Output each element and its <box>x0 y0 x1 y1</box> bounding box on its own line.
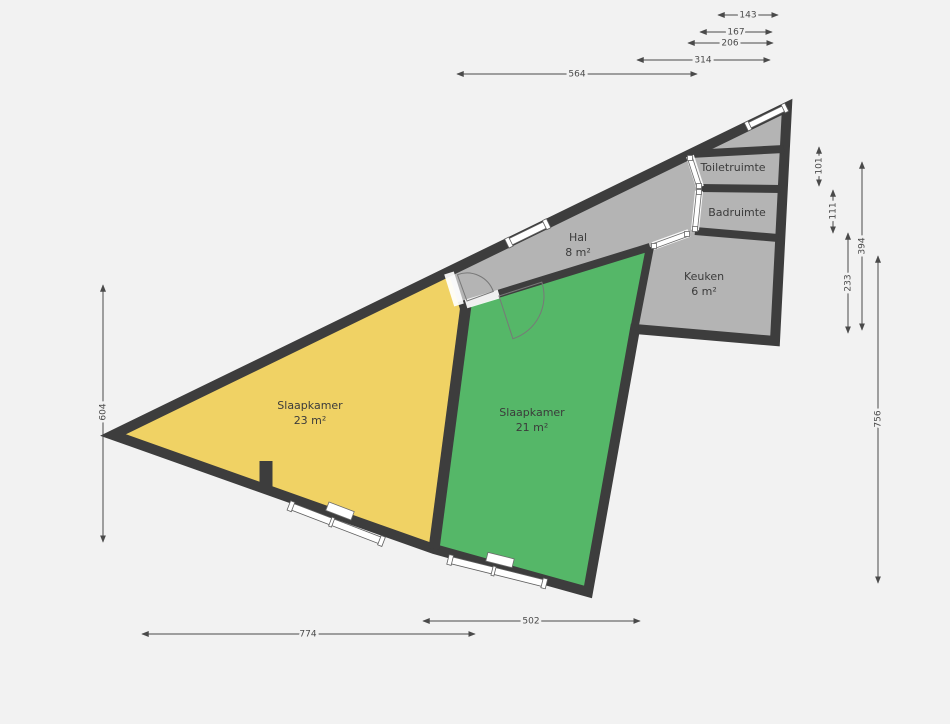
svg-text:756: 756 <box>874 410 884 427</box>
rooms <box>113 107 787 592</box>
dimension-564: 564 <box>457 70 697 80</box>
dimension-143: 143 <box>718 11 778 21</box>
floor-plan-svg: Toiletruimte Badruimte Hal 8 m² Keuken 6… <box>0 0 950 724</box>
svg-text:774: 774 <box>299 630 316 640</box>
label-slaapkamer-links-area: 23 m² <box>294 414 327 427</box>
svg-text:167: 167 <box>727 28 744 38</box>
svg-text:314: 314 <box>694 56 711 66</box>
svg-text:111: 111 <box>829 202 839 219</box>
svg-text:233: 233 <box>844 274 854 291</box>
floor-plan-canvas: Toiletruimte Badruimte Hal 8 m² Keuken 6… <box>0 0 950 724</box>
label-keuken-area: 6 m² <box>691 285 717 298</box>
dimension-774: 774 <box>142 630 475 640</box>
svg-text:394: 394 <box>858 237 868 254</box>
label-slaapkamer-links: Slaapkamer <box>277 399 343 412</box>
label-badruimte: Badruimte <box>708 206 766 219</box>
svg-text:564: 564 <box>568 70 585 80</box>
label-toiletruimte: Toiletruimte <box>699 161 765 174</box>
label-hal-area: 8 m² <box>565 246 591 259</box>
label-hal: Hal <box>569 231 587 244</box>
svg-text:604: 604 <box>99 403 109 420</box>
svg-text:206: 206 <box>721 39 738 49</box>
label-slaapkamer-rechts-area: 21 m² <box>516 421 549 434</box>
dimension-167: 167 <box>700 28 772 38</box>
dimension-502: 502 <box>423 617 640 627</box>
svg-text:101: 101 <box>815 157 825 174</box>
svg-text:502: 502 <box>522 617 539 627</box>
dimension-111: 111 <box>829 190 839 233</box>
dimension-314: 314 <box>637 56 770 66</box>
dimension-101: 101 <box>815 147 825 186</box>
svg-text:143: 143 <box>739 11 756 21</box>
dimension-756: 756 <box>874 256 884 583</box>
dimension-206: 206 <box>688 39 773 49</box>
label-slaapkamer-rechts: Slaapkamer <box>499 406 565 419</box>
label-keuken: Keuken <box>684 270 724 283</box>
dimension-604: 604 <box>99 285 109 542</box>
dimension-233: 233 <box>844 233 854 333</box>
dimension-394: 394 <box>858 162 868 330</box>
